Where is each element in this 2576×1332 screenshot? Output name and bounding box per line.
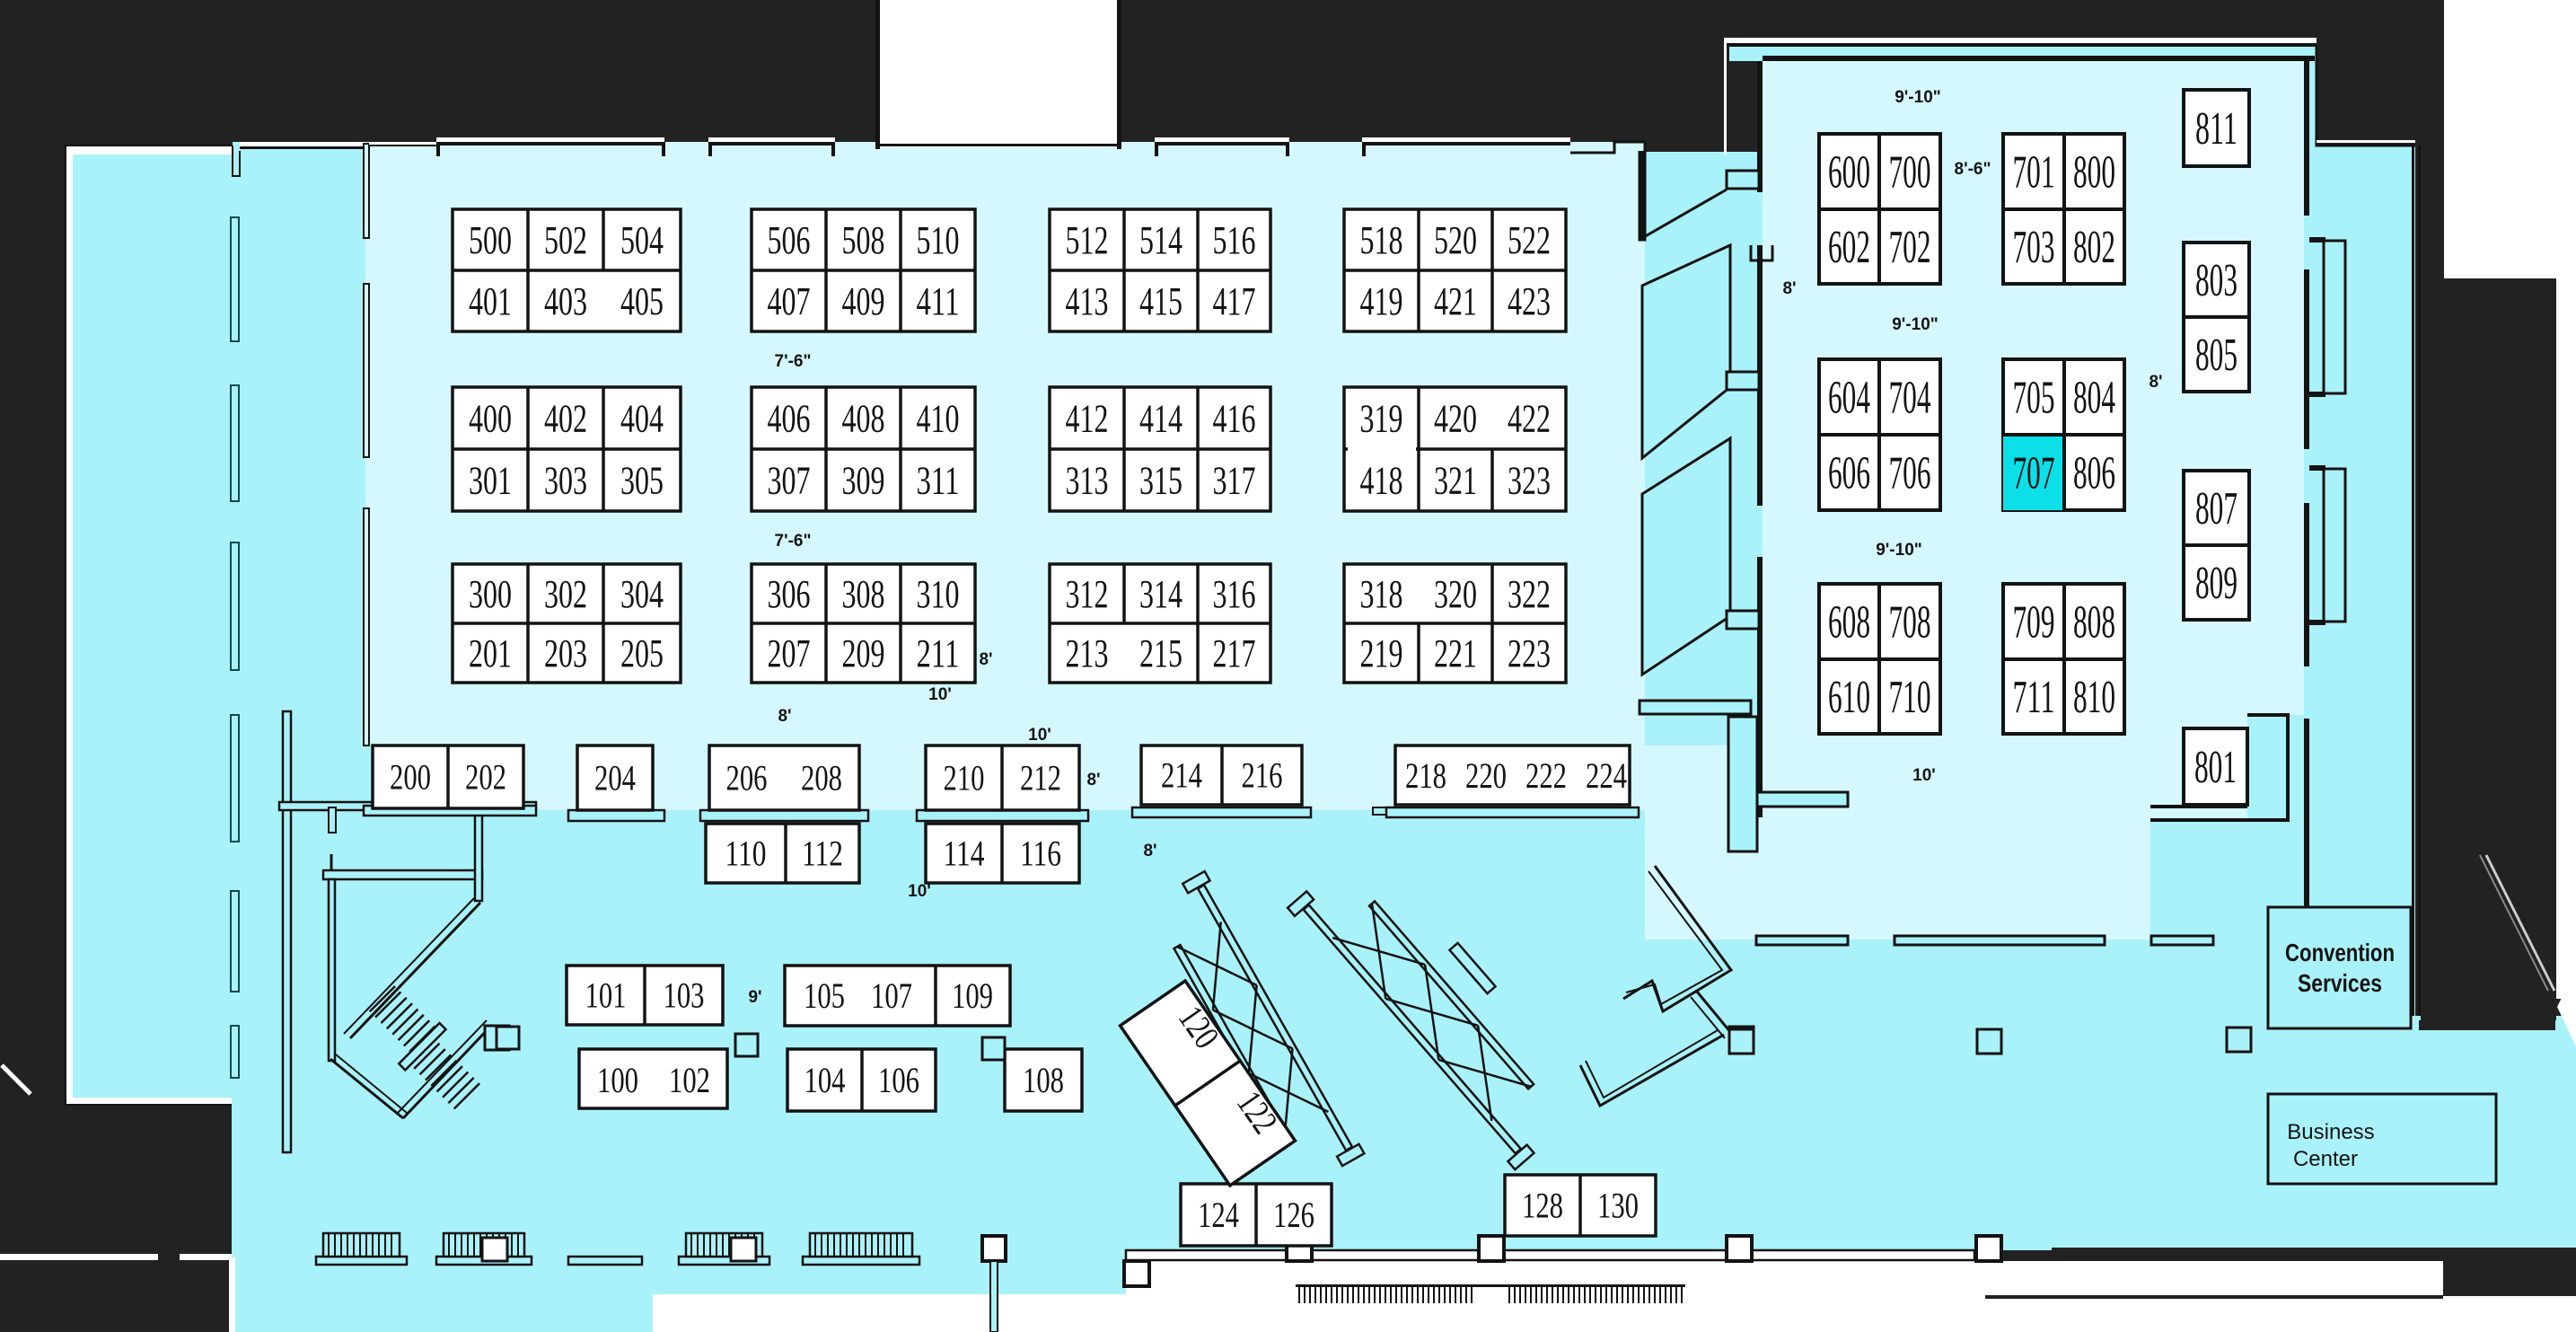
svg-text:9'-10": 9'-10" [1895, 88, 1941, 107]
svg-text:705: 705 [2013, 373, 2055, 424]
svg-text:316: 316 [1213, 572, 1256, 616]
svg-text:10': 10' [1912, 766, 1936, 785]
svg-text:109: 109 [952, 975, 993, 1016]
svg-text:711: 711 [2013, 672, 2055, 723]
svg-text:209: 209 [842, 631, 885, 675]
svg-text:217: 217 [1213, 631, 1256, 675]
svg-text:10': 10' [1028, 726, 1051, 745]
svg-text:411: 411 [917, 279, 960, 323]
svg-text:319: 319 [1360, 396, 1403, 440]
svg-text:422: 422 [1508, 396, 1551, 440]
svg-text:801: 801 [2194, 742, 2237, 793]
svg-text:806: 806 [2073, 448, 2115, 499]
svg-text:516: 516 [1213, 218, 1256, 262]
svg-text:105: 105 [804, 975, 845, 1016]
svg-text:9': 9' [748, 988, 761, 1007]
svg-text:106: 106 [878, 1060, 919, 1100]
svg-text:Center: Center [2293, 1147, 2358, 1171]
svg-text:803: 803 [2195, 255, 2238, 306]
svg-text:8'-6": 8'-6" [1955, 160, 1991, 179]
svg-text:608: 608 [1828, 597, 1870, 648]
svg-text:Business: Business [2287, 1120, 2374, 1144]
svg-text:300: 300 [469, 572, 512, 616]
svg-text:309: 309 [842, 458, 885, 502]
svg-text:207: 207 [768, 631, 811, 675]
svg-text:214: 214 [1161, 755, 1202, 796]
svg-text:520: 520 [1434, 218, 1477, 262]
svg-text:518: 518 [1360, 218, 1403, 262]
svg-text:8': 8' [1143, 842, 1156, 860]
svg-text:224: 224 [1586, 755, 1627, 796]
svg-text:807: 807 [2195, 483, 2238, 534]
svg-text:412: 412 [1066, 396, 1109, 440]
svg-text:219: 219 [1360, 631, 1403, 675]
svg-text:212: 212 [1020, 758, 1061, 798]
svg-text:800: 800 [2073, 147, 2115, 198]
svg-text:302: 302 [544, 572, 587, 616]
svg-text:402: 402 [544, 396, 587, 440]
svg-text:9'-10": 9'-10" [1892, 315, 1939, 334]
svg-text:306: 306 [768, 572, 811, 616]
svg-text:104: 104 [804, 1060, 846, 1100]
svg-text:504: 504 [620, 218, 664, 262]
svg-text:416: 416 [1213, 396, 1256, 440]
svg-text:413: 413 [1066, 279, 1109, 323]
svg-text:208: 208 [801, 758, 842, 798]
svg-text:421: 421 [1434, 279, 1477, 323]
svg-text:7'-6": 7'-6" [775, 352, 812, 371]
svg-text:220: 220 [1465, 755, 1507, 796]
svg-text:216: 216 [1242, 755, 1283, 796]
svg-text:8': 8' [979, 650, 992, 669]
svg-text:321: 321 [1434, 458, 1477, 502]
svg-text:401: 401 [469, 279, 512, 323]
svg-text:205: 205 [620, 631, 664, 675]
svg-text:310: 310 [917, 572, 960, 616]
svg-text:600: 600 [1828, 147, 1870, 198]
svg-text:400: 400 [469, 396, 512, 440]
svg-text:202: 202 [465, 757, 506, 798]
svg-text:8': 8' [778, 707, 791, 726]
svg-text:320: 320 [1434, 572, 1477, 616]
svg-text:108: 108 [1023, 1060, 1064, 1100]
svg-text:10': 10' [928, 685, 952, 704]
svg-text:700: 700 [1889, 147, 1931, 198]
svg-text:221: 221 [1434, 631, 1477, 675]
svg-text:417: 417 [1213, 279, 1256, 323]
svg-text:522: 522 [1508, 218, 1551, 262]
svg-text:213: 213 [1066, 631, 1109, 675]
svg-text:8': 8' [1782, 279, 1796, 298]
svg-text:100: 100 [597, 1060, 638, 1100]
svg-text:506: 506 [768, 218, 811, 262]
svg-text:404: 404 [620, 396, 664, 440]
svg-text:804: 804 [2073, 373, 2115, 424]
svg-text:508: 508 [842, 218, 885, 262]
svg-text:317: 317 [1213, 458, 1256, 502]
svg-text:311: 311 [917, 458, 960, 502]
svg-text:211: 211 [917, 631, 960, 675]
svg-text:304: 304 [620, 572, 664, 616]
svg-text:810: 810 [2073, 672, 2115, 723]
svg-text:514: 514 [1139, 218, 1182, 262]
svg-text:313: 313 [1066, 458, 1109, 502]
svg-text:8': 8' [1086, 771, 1100, 789]
svg-text:7'-6": 7'-6" [775, 532, 812, 551]
svg-text:419: 419 [1360, 279, 1403, 323]
svg-text:204: 204 [594, 758, 636, 798]
svg-text:218: 218 [1405, 755, 1446, 796]
svg-text:510: 510 [917, 218, 960, 262]
svg-text:112: 112 [802, 834, 843, 874]
svg-text:802: 802 [2073, 222, 2115, 273]
svg-text:303: 303 [544, 458, 587, 502]
svg-text:318: 318 [1360, 572, 1403, 616]
svg-text:110: 110 [725, 834, 767, 874]
svg-text:307: 307 [768, 458, 811, 502]
svg-text:805: 805 [2195, 330, 2238, 381]
svg-text:323: 323 [1508, 458, 1551, 502]
svg-text:604: 604 [1828, 373, 1870, 424]
svg-text:512: 512 [1066, 218, 1109, 262]
svg-text:500: 500 [469, 218, 512, 262]
svg-text:408: 408 [842, 396, 885, 440]
svg-text:418: 418 [1360, 458, 1403, 502]
svg-text:126: 126 [1273, 1195, 1314, 1235]
svg-text:102: 102 [669, 1060, 710, 1100]
svg-text:701: 701 [2013, 147, 2055, 198]
svg-text:606: 606 [1828, 448, 1870, 499]
svg-text:201: 201 [469, 631, 512, 675]
svg-text:502: 502 [544, 218, 587, 262]
svg-text:811: 811 [2195, 103, 2238, 154]
svg-text:103: 103 [664, 975, 705, 1016]
svg-text:423: 423 [1508, 279, 1551, 323]
svg-text:215: 215 [1139, 631, 1182, 675]
svg-text:710: 710 [1889, 672, 1931, 723]
svg-text:702: 702 [1889, 222, 1931, 273]
svg-text:Services: Services [2298, 969, 2382, 997]
svg-text:223: 223 [1508, 631, 1551, 675]
svg-text:206: 206 [726, 758, 768, 798]
svg-text:314: 314 [1139, 572, 1182, 616]
svg-text:407: 407 [768, 279, 811, 323]
svg-text:Convention: Convention [2285, 939, 2395, 966]
svg-text:709: 709 [2013, 597, 2055, 648]
svg-text:203: 203 [544, 631, 587, 675]
svg-text:808: 808 [2073, 597, 2115, 648]
svg-text:308: 308 [842, 572, 885, 616]
svg-text:301: 301 [469, 458, 512, 502]
svg-text:305: 305 [620, 458, 664, 502]
svg-text:610: 610 [1828, 672, 1870, 723]
svg-text:10': 10' [908, 882, 931, 901]
svg-text:420: 420 [1434, 396, 1477, 440]
svg-text:116: 116 [1020, 834, 1061, 874]
svg-text:124: 124 [1198, 1195, 1239, 1235]
svg-text:107: 107 [871, 975, 912, 1016]
svg-text:406: 406 [768, 396, 811, 440]
svg-text:210: 210 [944, 758, 985, 798]
svg-text:128: 128 [1522, 1186, 1563, 1226]
svg-text:101: 101 [585, 975, 627, 1016]
svg-text:703: 703 [2013, 222, 2055, 273]
svg-text:200: 200 [390, 757, 431, 798]
svg-text:315: 315 [1139, 458, 1182, 502]
svg-text:222: 222 [1525, 755, 1567, 796]
svg-text:708: 708 [1889, 597, 1931, 648]
svg-text:704: 704 [1889, 373, 1931, 424]
svg-text:409: 409 [842, 279, 885, 323]
svg-text:706: 706 [1889, 448, 1931, 499]
svg-text:114: 114 [944, 834, 985, 874]
svg-text:322: 322 [1508, 572, 1551, 616]
svg-text:312: 312 [1066, 572, 1109, 616]
svg-text:410: 410 [917, 396, 960, 440]
svg-text:602: 602 [1828, 222, 1870, 273]
svg-text:415: 415 [1139, 279, 1182, 323]
svg-text:130: 130 [1597, 1186, 1639, 1226]
svg-text:9'-10": 9'-10" [1876, 541, 1922, 560]
svg-text:8': 8' [2149, 373, 2162, 392]
svg-text:403: 403 [544, 279, 587, 323]
svg-text:707: 707 [2013, 448, 2055, 499]
svg-text:809: 809 [2195, 558, 2238, 609]
svg-text:414: 414 [1139, 396, 1182, 440]
svg-text:405: 405 [620, 279, 664, 323]
